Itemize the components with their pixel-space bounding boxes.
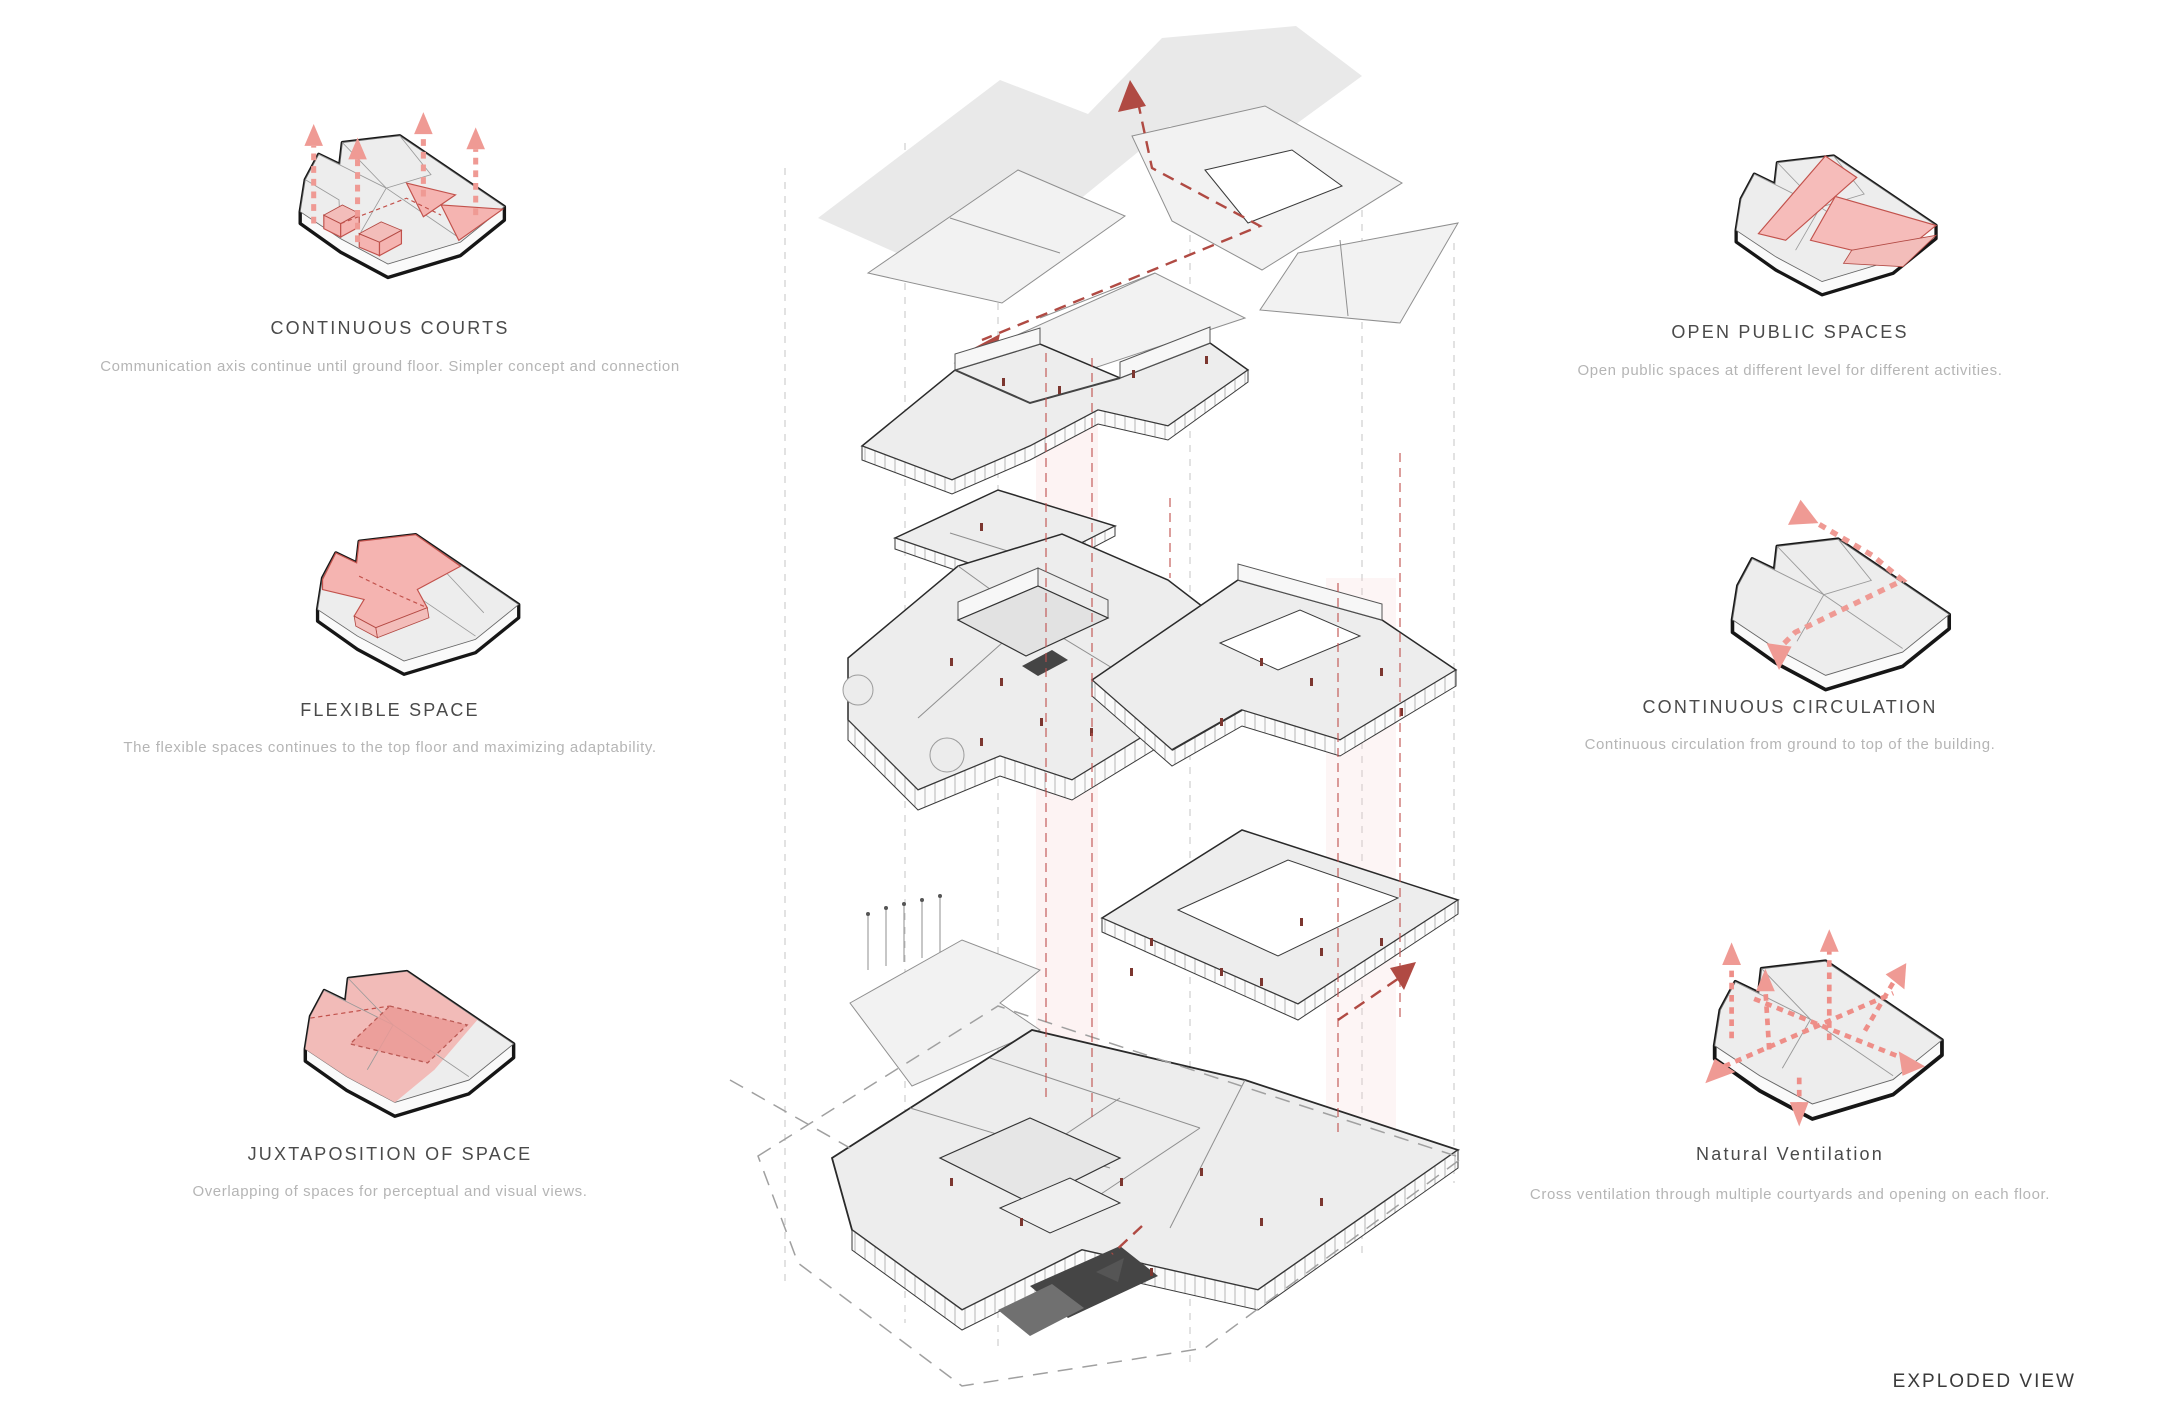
- exploded-axonometric-diagram: [700, 18, 1480, 1398]
- site-boundary-extension: [730, 1080, 850, 1148]
- panel-title-open-public-spaces: OPEN PUBLIC SPACES: [1478, 322, 2102, 343]
- open-public-spaces-axon-icon: [1664, 118, 1990, 308]
- flexible-space-axon-icon: [276, 496, 542, 688]
- panel-desc-continuous-circulation: Continuous circulation from ground to to…: [1478, 734, 2102, 755]
- panel-title-flexible-space: FLEXIBLE SPACE: [85, 700, 695, 721]
- panel-desc-open-public-spaces: Open public spaces at different level fo…: [1478, 360, 2102, 381]
- continuous-circulation-axon-icon: [1668, 498, 1994, 704]
- continuous-courts-axon-icon: [258, 80, 528, 308]
- floor-plate-courtyard: [1102, 830, 1458, 1020]
- panel-desc-flexible-space: The flexible spaces continues to the top…: [85, 737, 695, 758]
- panel-desc-juxtaposition-of-space: Overlapping of spaces for perceptual and…: [85, 1181, 695, 1202]
- natural-ventilation-axon-icon: [1640, 918, 1996, 1134]
- panel-title-continuous-courts: CONTINUOUS COURTS: [85, 318, 695, 339]
- exploded-view-label: EXPLODED VIEW: [1893, 1371, 2076, 1393]
- panel-desc-continuous-courts: Communication axis continue until ground…: [85, 356, 695, 377]
- concept-board: CONTINUOUS COURTS Communication axis con…: [0, 0, 2184, 1413]
- juxtaposition-of-space-axon-icon: [262, 932, 538, 1130]
- panel-title-continuous-circulation: CONTINUOUS CIRCULATION: [1478, 697, 2102, 718]
- panel-desc-natural-ventilation: Cross ventilation through multiple court…: [1478, 1184, 2102, 1205]
- panel-title-juxtaposition-of-space: JUXTAPOSITION OF SPACE: [85, 1144, 695, 1165]
- panel-title-natural-ventilation: Natural Ventilation: [1478, 1144, 2102, 1165]
